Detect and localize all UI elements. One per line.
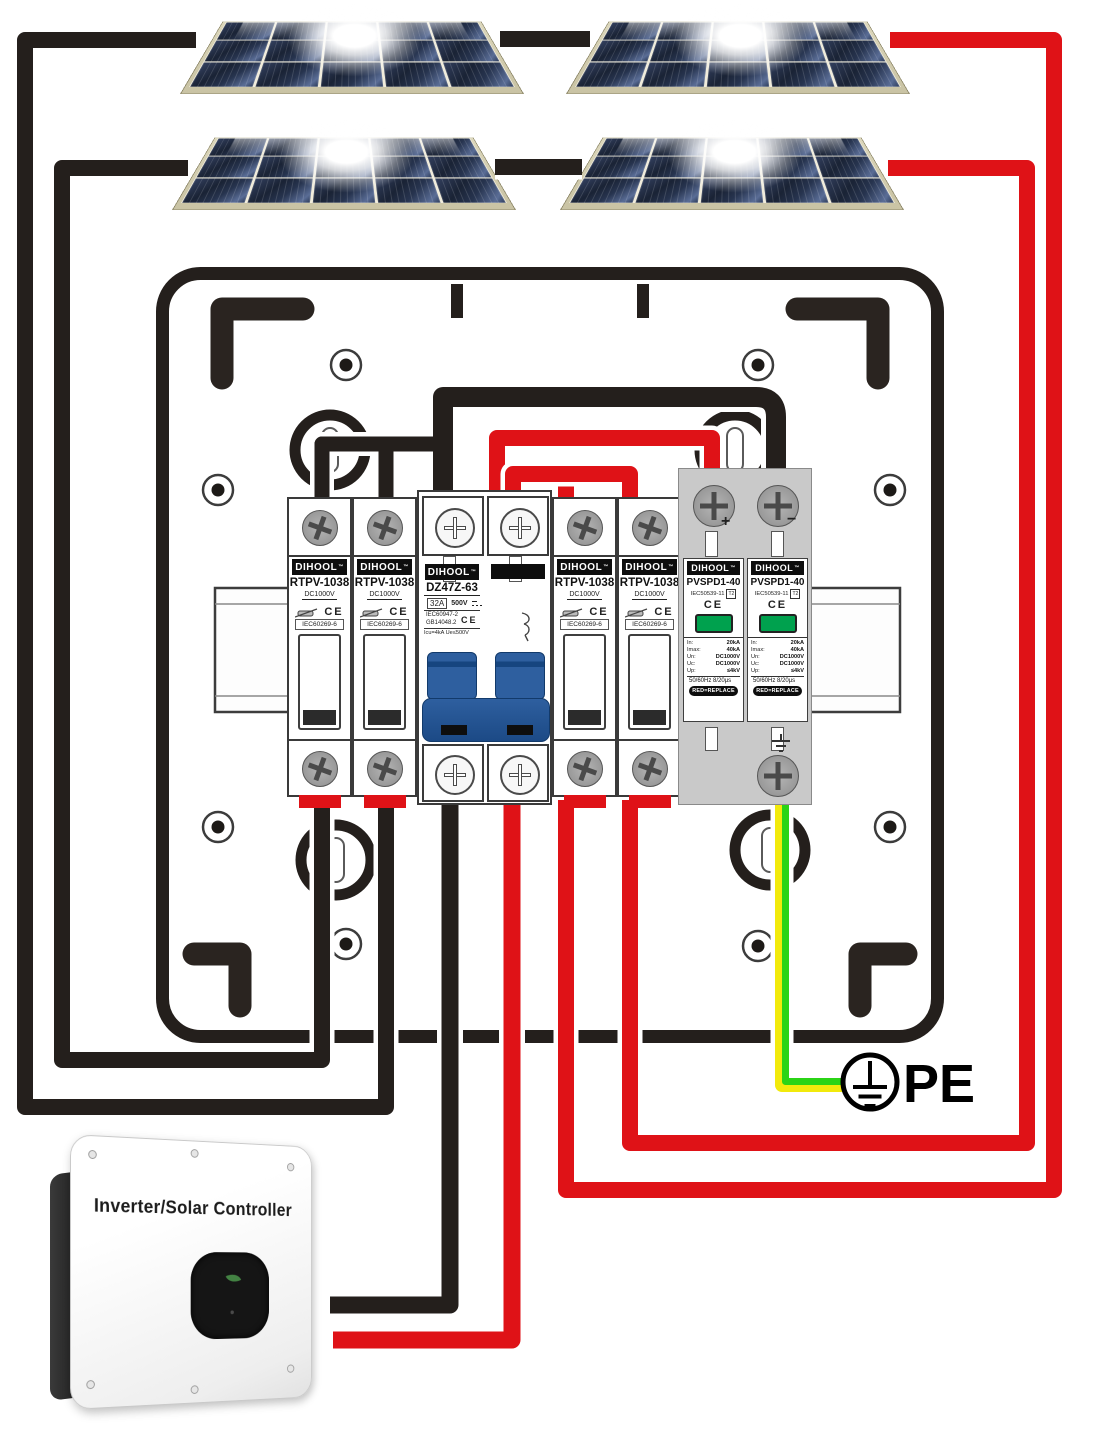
fuse-window[interactable] (563, 634, 606, 730)
fuse-cartridge-icon (295, 608, 319, 618)
phillips-screw-icon[interactable] (435, 755, 475, 795)
terminal-tab (299, 795, 341, 808)
inverter-display[interactable] (191, 1252, 269, 1340)
terminal-cap-top[interactable] (289, 499, 350, 557)
fuse-window[interactable] (298, 634, 341, 730)
pe-label: PE (903, 1054, 975, 1114)
phillips-screw-icon[interactable] (302, 751, 338, 787)
screw-icon (88, 1150, 97, 1159)
pe-earth-icon (843, 1055, 897, 1109)
standard-label: IEC50539-11 (755, 590, 789, 598)
brand-badge-blank (491, 564, 545, 579)
standard-label: IEC60269-6 (360, 619, 409, 630)
terminal-cap-top[interactable] (422, 496, 484, 556)
model-label: PVSPD1-40 (684, 576, 743, 589)
current-rating-label: 32A (427, 598, 447, 609)
breaker-label-block: DIHOOL™ DZ47Z-63 32A 500V IEC60947-2 GB1… (422, 562, 482, 637)
green-indicator-window (759, 614, 797, 633)
ce-mark: CE (389, 606, 408, 618)
ce-mark: CE (748, 599, 807, 612)
model-label: PVSPD1-40 (748, 576, 807, 589)
ce-mark: CE (324, 606, 343, 618)
brand-badge: DIHOOL™ (357, 559, 412, 575)
type-class-label: T2 (790, 589, 800, 599)
phillips-screw-icon[interactable] (500, 508, 540, 548)
spd-module-1[interactable]: DIHOOL™ PVSPD1-40 IEC50539-11T2 CE In:20… (683, 558, 744, 722)
terminal-cap-bottom[interactable] (289, 739, 350, 795)
model-label: RTPV-1038 (619, 576, 680, 590)
phillips-screw-icon[interactable] (632, 510, 668, 546)
standard-label: IEC60947-2 (426, 612, 458, 620)
screw-icon (86, 1380, 95, 1389)
breaker-tie-bar[interactable] (422, 698, 550, 742)
frequency-label: 50/60Hz 8/20μs (751, 676, 804, 684)
phillips-screw-icon[interactable] (567, 751, 603, 787)
terminal-cap-bottom[interactable] (422, 744, 484, 802)
phillips-screw-icon[interactable] (435, 508, 475, 548)
phillips-screw-icon[interactable] (567, 510, 603, 546)
terminal-cap-bottom[interactable] (619, 739, 680, 795)
standard-label: IEC50539-11 (691, 590, 725, 598)
breaking-capacity-label: Icu=4kA Ue≤500V (422, 629, 482, 637)
standard-label: IEC60269-6 (295, 619, 344, 630)
standard-label: IEC60269-6 (625, 619, 674, 630)
model-label: RTPV-1038 (554, 576, 615, 590)
model-label: DZ47Z-63 (422, 581, 482, 596)
spd-specs: In:20kA Imax:40kA Un:DC1000V Uc:DC1000V … (684, 637, 743, 696)
breaker-toggle-1[interactable] (427, 652, 477, 700)
din-clip-slot (705, 531, 718, 557)
surge-protector[interactable]: + − DIHOOL™ PVSPD1-40 IEC50539-11T2 CE I… (678, 468, 812, 805)
terminal-cap-top[interactable] (487, 496, 549, 556)
minus-terminal-label: − (787, 511, 796, 529)
din-clip-slot (705, 727, 718, 751)
voltage-label: DC1000V (289, 590, 350, 600)
model-label: RTPV-1038 (289, 576, 350, 590)
green-indicator-window (695, 614, 733, 633)
terminal-cap-bottom[interactable] (487, 744, 549, 802)
brand-badge: DIHOOL™ (425, 564, 479, 580)
frequency-label: 50/60Hz 8/20μs (687, 676, 740, 684)
terminal-cap-top[interactable] (354, 499, 415, 557)
terminal-cap-bottom[interactable] (354, 739, 415, 795)
screw-icon (287, 1163, 294, 1172)
brand-badge: DIHOOL™ (622, 559, 677, 575)
fuse-handle[interactable] (568, 710, 601, 725)
ce-mark: CE (461, 615, 478, 625)
type-class-label: T2 (726, 589, 736, 599)
fuse-holder-4[interactable]: DIHOOL™ RTPV-1038 DC1000V CE IEC60269-6 (617, 497, 682, 797)
terminal-cap-bottom[interactable] (554, 739, 615, 795)
inverter[interactable]: Inverter/Solar Controller (70, 1134, 312, 1410)
terminal-tab (629, 795, 671, 808)
fuse-handle[interactable] (303, 710, 336, 725)
fuse-handle[interactable] (368, 710, 401, 725)
fuse-handle[interactable] (633, 710, 666, 725)
model-label: RTPV-1038 (354, 576, 415, 590)
dc-circuit-breaker[interactable]: DIHOOL™ DZ47Z-63 32A 500V IEC60947-2 GB1… (417, 490, 552, 805)
brand-badge: DIHOOL™ (687, 561, 740, 575)
ce-mark: CE (589, 606, 608, 618)
fuse-holder-1[interactable]: DIHOOL™ RTPV-1038 DC1000V CE IEC60269-6 (287, 497, 352, 797)
fuse-holder-2[interactable]: DIHOOL™ RTPV-1038 DC1000V CE IEC60269-6 (352, 497, 417, 797)
phillips-screw-icon[interactable] (367, 751, 403, 787)
voltage-label: DC1000V (554, 590, 615, 600)
leaf-icon (226, 1270, 241, 1285)
spd-specs: In:20kA Imax:40kA Un:DC1000V Uc:DC1000V … (748, 637, 807, 696)
fuse-cartridge-icon (625, 608, 649, 618)
ce-mark: CE (654, 606, 673, 618)
screw-icon (191, 1149, 199, 1158)
screw-icon (287, 1364, 294, 1373)
trip-curve-icon (517, 610, 537, 644)
terminal-tab (364, 795, 406, 808)
voltage-label: DC1000V (619, 590, 680, 600)
status-led (230, 1310, 233, 1314)
brand-badge: DIHOOL™ (751, 561, 804, 575)
phillips-screw-icon[interactable] (302, 510, 338, 546)
fuse-holder-3[interactable]: DIHOOL™ RTPV-1038 DC1000V CE IEC60269-6 (552, 497, 617, 797)
ground-symbol-icon (769, 733, 793, 753)
fuse-cartridge-icon (560, 608, 584, 618)
fuse-cartridge-icon (360, 608, 384, 618)
phillips-screw-icon[interactable] (757, 755, 799, 797)
fuse-window[interactable] (363, 634, 406, 730)
replace-indicator-label: RED=REPLACE (753, 686, 802, 696)
phillips-screw-icon[interactable] (367, 510, 403, 546)
inverter-title: Inverter/Solar Controller (71, 1195, 311, 1222)
screw-icon (191, 1385, 199, 1394)
din-clip-slot (771, 531, 784, 557)
terminal-cap-top[interactable] (554, 499, 615, 557)
terminal-tab (564, 795, 606, 808)
voltage-rating-label: 500V (451, 600, 467, 607)
brand-badge: DIHOOL™ (292, 559, 347, 575)
terminal-cap-top[interactable] (619, 499, 680, 557)
standard-label: IEC60269-6 (560, 619, 609, 630)
standard-label: GB14048.2 (426, 620, 458, 628)
replace-indicator-label: RED=REPLACE (689, 686, 738, 696)
brand-badge: DIHOOL™ (557, 559, 612, 575)
spd-module-2[interactable]: DIHOOL™ PVSPD1-40 IEC50539-11T2 CE In:20… (747, 558, 808, 722)
dc-symbol-icon (472, 601, 477, 608)
phillips-screw-icon[interactable] (632, 751, 668, 787)
tie-bar-slot (507, 725, 533, 735)
plus-terminal-label: + (721, 513, 730, 531)
tie-bar-slot (441, 725, 467, 735)
phillips-screw-icon[interactable] (500, 755, 540, 795)
voltage-label: DC1000V (354, 590, 415, 600)
ce-mark: CE (684, 599, 743, 612)
breaker-toggle-2[interactable] (495, 652, 545, 700)
fuse-window[interactable] (628, 634, 671, 730)
